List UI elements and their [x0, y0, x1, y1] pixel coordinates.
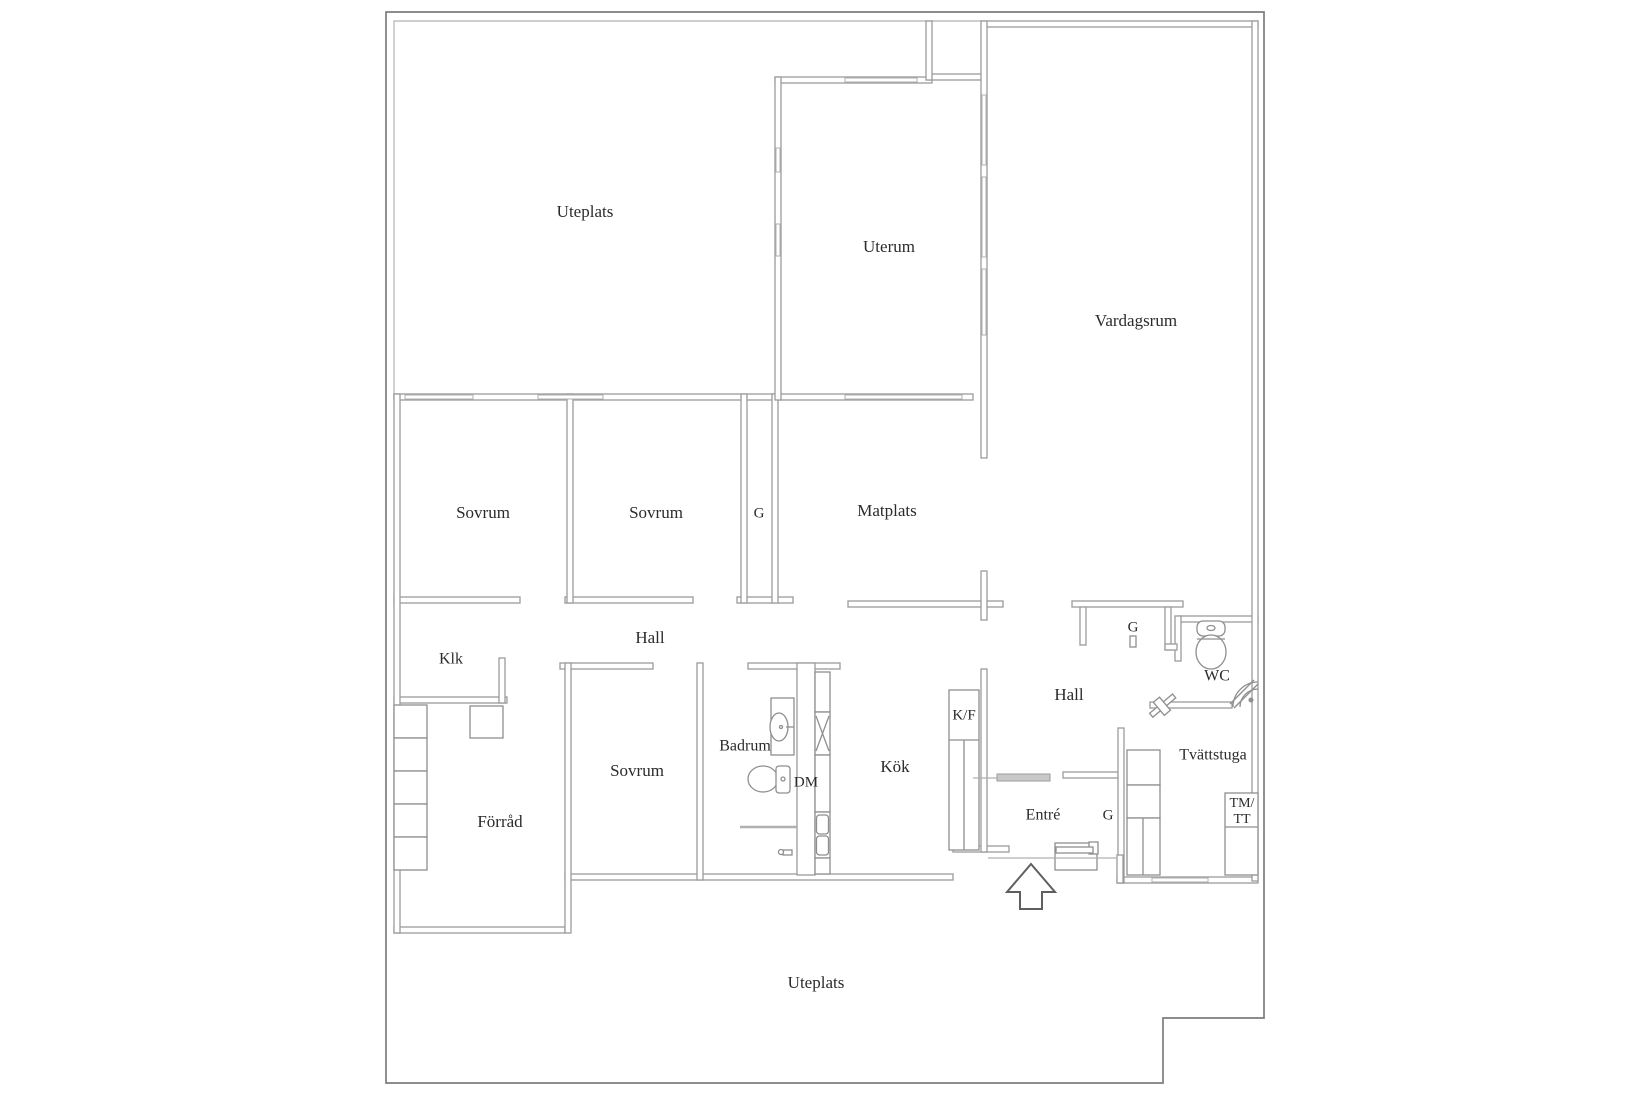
closet-door-tick: [1130, 636, 1136, 647]
room-label-tmtt-line2: TT: [1233, 812, 1251, 827]
bathroom-fixtures: [740, 698, 797, 855]
room-label-klk: Klk: [439, 651, 463, 668]
floor-plan-page: UteplatsUterumVardagsrumSovrumSovrumGMat…: [0, 0, 1650, 1100]
kitchen-counter: [815, 672, 830, 874]
floor-plan: UteplatsUterumVardagsrumSovrumSovrumGMat…: [0, 0, 1650, 1100]
room-label-garderob-entre: G: [1103, 807, 1114, 823]
room-label-tvattstuga: Tvättstuga: [1179, 747, 1247, 764]
room-label-entre: Entré: [1026, 807, 1061, 824]
room-label-garderob-mid: G: [754, 505, 765, 521]
room-label-hall-west: Hall: [635, 628, 665, 647]
sink-basin-icon: [817, 836, 829, 855]
room-label-badrum: Badrum: [719, 738, 771, 755]
room-label-sovrum-2: Sovrum: [629, 503, 683, 522]
room-label-sovrum-3: Sovrum: [610, 761, 664, 780]
room-label-dm: DM: [794, 774, 818, 790]
room-label-tmtt-line1: TM/: [1230, 796, 1255, 811]
room-label-forrad: Förråd: [477, 812, 523, 831]
room-label-uteplats-bottom: Uteplats: [788, 973, 845, 992]
entrance-arrow-icon: [1007, 864, 1055, 909]
room-label-kok: Kök: [880, 757, 910, 776]
sliding-door: [997, 774, 1050, 781]
room-label-wc: WC: [1204, 668, 1230, 685]
plot-boundary: [386, 12, 1264, 1083]
room-label-vardagsrum: Vardagsrum: [1095, 311, 1177, 330]
toilet-bowl-icon: [748, 766, 778, 792]
room-label-uterum: Uterum: [863, 237, 915, 256]
toilet-bowl-icon: [1196, 635, 1226, 669]
shower-control-icon: [783, 850, 792, 855]
sink-basin-icon: [817, 815, 829, 834]
room-label-sovrum-1: Sovrum: [456, 503, 510, 522]
storage-shelves: [394, 705, 503, 870]
room-label-hall-east: Hall: [1054, 685, 1084, 704]
room-label-garderob-hall: G: [1128, 619, 1139, 635]
room-label-matplats: Matplats: [857, 501, 917, 520]
entry-door-leaf: [1056, 847, 1093, 853]
room-label-uteplats-top: Uteplats: [557, 202, 614, 221]
room-label-kf: K/F: [952, 707, 975, 723]
